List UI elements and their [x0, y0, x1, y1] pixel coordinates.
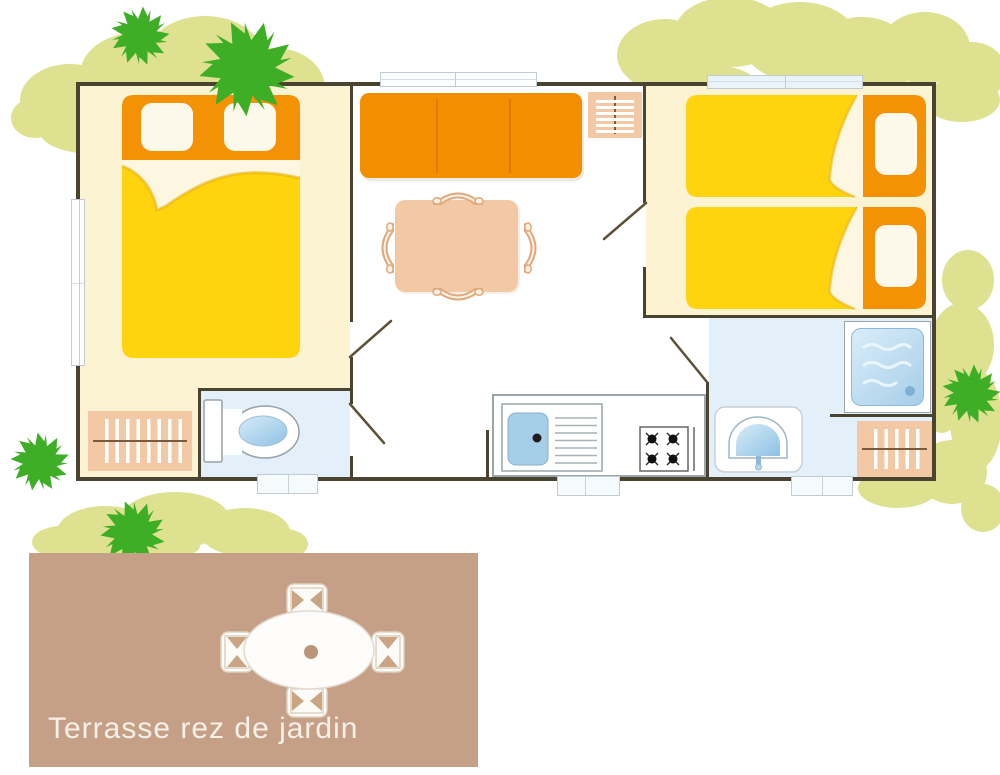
wardrobe-bedroom	[88, 411, 192, 471]
wall-bedroom-partition-lower	[350, 357, 353, 391]
pillow	[224, 103, 276, 151]
window-double-bedroom	[71, 199, 85, 366]
sofa-seam	[509, 99, 511, 173]
entry-step-bathroom	[791, 476, 853, 496]
dining-chair-right	[524, 221, 546, 275]
window-twin-bedroom	[707, 75, 863, 89]
pillow	[141, 103, 193, 151]
wall-twin-partition-lower	[643, 267, 646, 318]
toilet	[199, 393, 349, 477]
shelf-cabinet	[588, 92, 642, 138]
wall-toilet-top	[198, 388, 353, 391]
wall-exterior-right	[932, 82, 936, 481]
wall-toilet-right-upper	[350, 391, 353, 404]
terrace-chair-right	[371, 631, 405, 673]
entry-step-kitchen	[557, 476, 620, 496]
terrace-label: Terrasse rez de jardin	[48, 712, 358, 746]
shower-drain	[905, 386, 915, 396]
dining-chair-left	[372, 221, 394, 275]
pillow	[875, 113, 917, 175]
toilet-water	[239, 416, 287, 446]
washbasin	[714, 406, 803, 473]
wall-bedroom-partition-upper	[350, 86, 353, 322]
toilet-tank	[204, 400, 222, 462]
wall-kitchen-stub	[486, 430, 489, 478]
floorplan: Terrasse rez de jardin	[0, 0, 1000, 775]
entry-step-toilet	[257, 474, 318, 494]
shower-basin	[851, 328, 924, 406]
wall-shower-divider	[830, 414, 932, 417]
sink-drain	[533, 434, 542, 443]
kitchen-sink	[508, 413, 548, 465]
parasol-hole	[304, 645, 318, 659]
pillow	[875, 225, 917, 287]
dining-table	[395, 200, 518, 292]
terrace-table	[243, 610, 375, 690]
shower-tray	[844, 321, 931, 413]
kitchen-counter	[492, 394, 706, 477]
twin-bed-1	[685, 94, 931, 198]
wall-toilet-right-lower	[350, 456, 353, 478]
wall-twin-partition-upper	[643, 86, 646, 203]
sofa	[360, 93, 582, 178]
wall-bathroom-left	[706, 382, 709, 478]
drainer-lines	[555, 418, 597, 463]
double-bed	[121, 94, 301, 359]
window-living	[380, 72, 537, 87]
dining-chair-top	[431, 183, 485, 205]
twin-bed-2	[685, 206, 931, 310]
wardrobe-bathroom	[857, 421, 932, 477]
sofa-seam	[436, 99, 438, 173]
dining-chair-bottom	[431, 288, 485, 310]
wall-twin-bottom	[643, 315, 936, 318]
